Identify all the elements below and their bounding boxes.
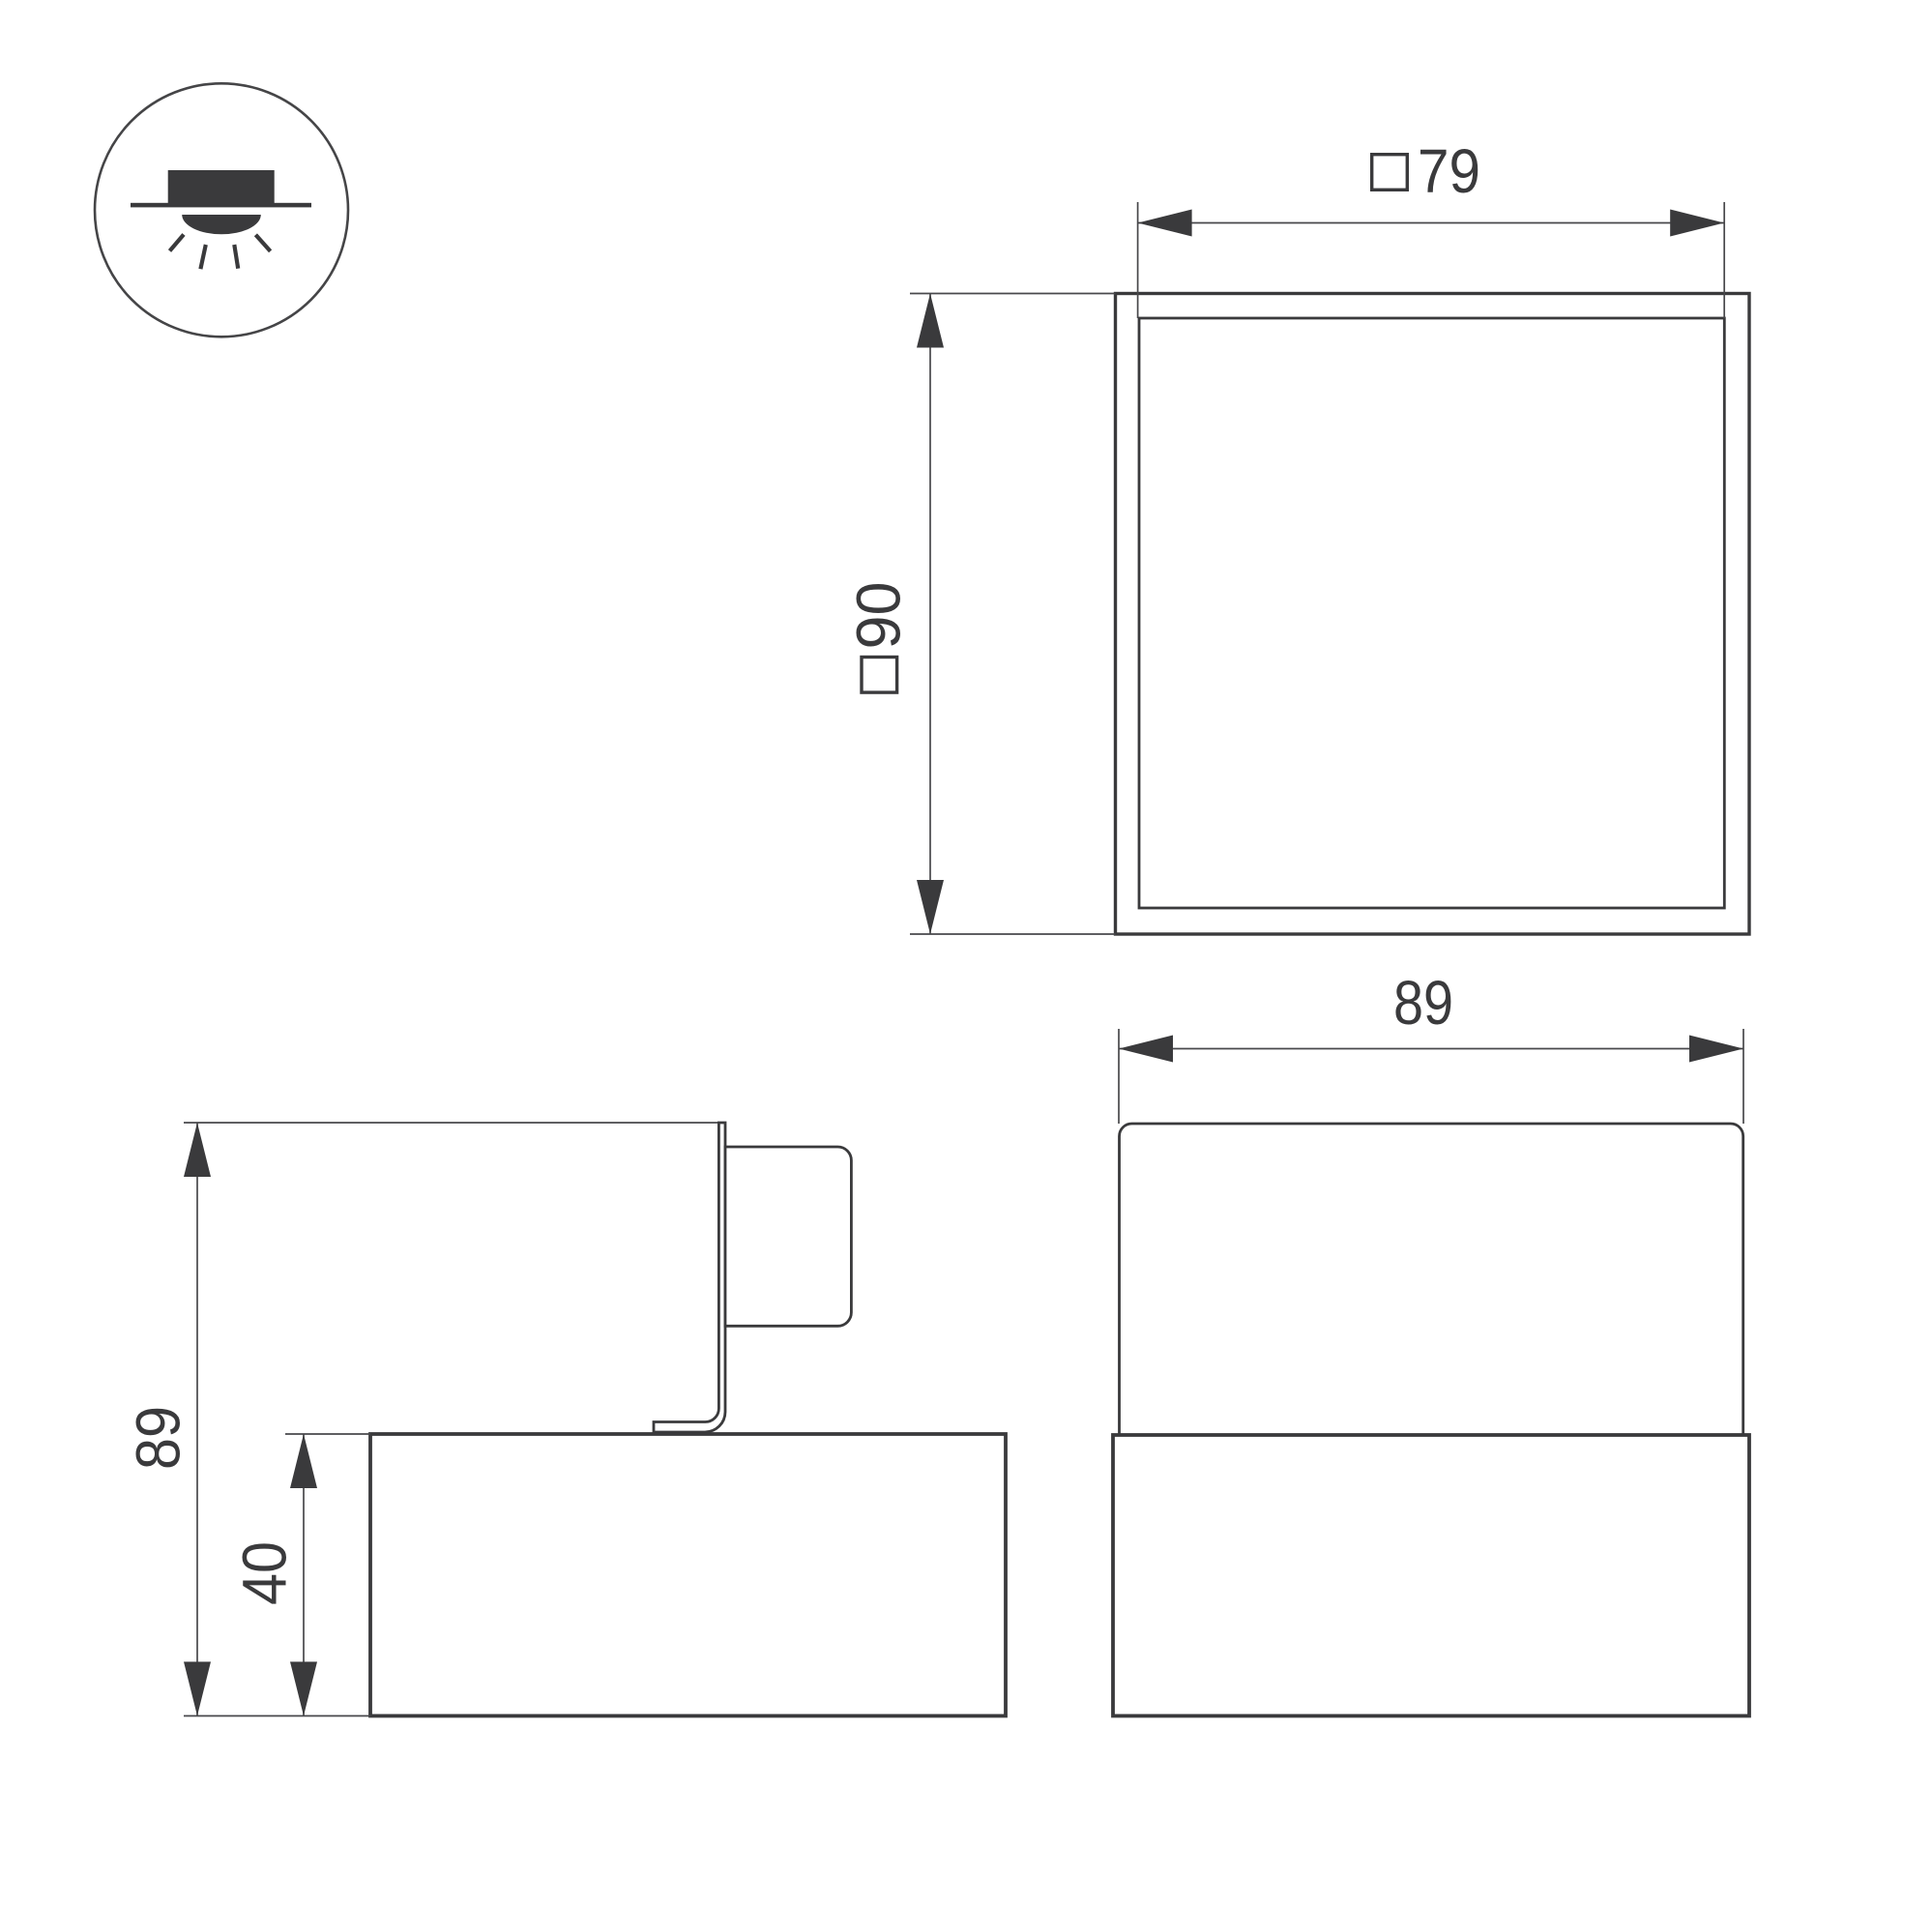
svg-text:79: 79 [1418,136,1480,206]
svg-text:89: 89 [123,1406,192,1470]
svg-text:90: 90 [844,582,914,650]
svg-text:89: 89 [1393,968,1453,1038]
svg-text:40: 40 [230,1541,300,1605]
